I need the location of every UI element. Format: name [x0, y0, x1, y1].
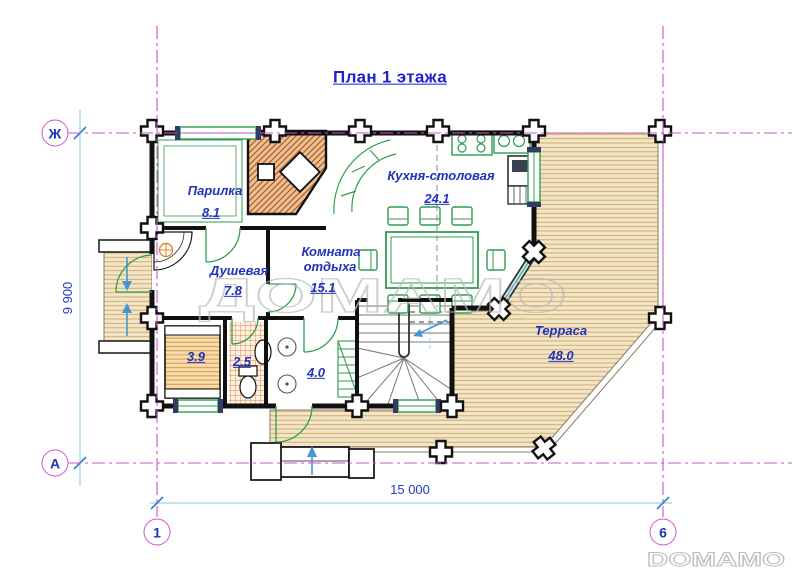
- room-label-terrasa: Терраса: [535, 324, 587, 338]
- room-label-komnata-line1: Комната: [302, 245, 361, 259]
- room-area-parilka: 8.1: [202, 206, 220, 220]
- room-area-dushevaya: 7.8: [224, 284, 242, 298]
- room-label-parilka: Парилка: [188, 184, 243, 198]
- page-title: План 1 этажа: [333, 69, 447, 88]
- room-area-sauna-room: 3.9: [187, 350, 205, 364]
- room-area-wc: 2.5: [233, 355, 251, 369]
- axis-marker-6: 6: [650, 519, 677, 546]
- window-bottom-right: [393, 399, 441, 413]
- window-east: [527, 147, 541, 207]
- room-area-terrasa: 48.0: [548, 349, 573, 363]
- window-bottom-left: [173, 399, 223, 413]
- entrance-porch: [251, 443, 374, 480]
- room-label-kuhnya: Кухня-столовая: [387, 169, 494, 183]
- balcony: [99, 240, 152, 353]
- floor-plan-page: ДОМАМО DOMAMO План 1 этажа Парилка 8.1 Д…: [0, 0, 800, 581]
- room-label-dushevaya: Душевая: [210, 264, 268, 278]
- room-area-komnata: 15.1: [310, 281, 335, 295]
- room-label-komnata-line2: отдыха: [304, 260, 357, 274]
- room-area-hall: 4.0: [307, 366, 325, 380]
- axis-marker-zh: Ж: [42, 120, 69, 147]
- axis-marker-a: А: [42, 450, 69, 477]
- room-area-kuhnya: 24.1: [424, 192, 449, 206]
- dimension-horizontal: 15 000: [390, 483, 430, 497]
- watermark-corner: DOMAMO: [647, 550, 785, 571]
- dimension-vertical: 9 900: [61, 282, 75, 315]
- axis-marker-1: 1: [144, 519, 171, 546]
